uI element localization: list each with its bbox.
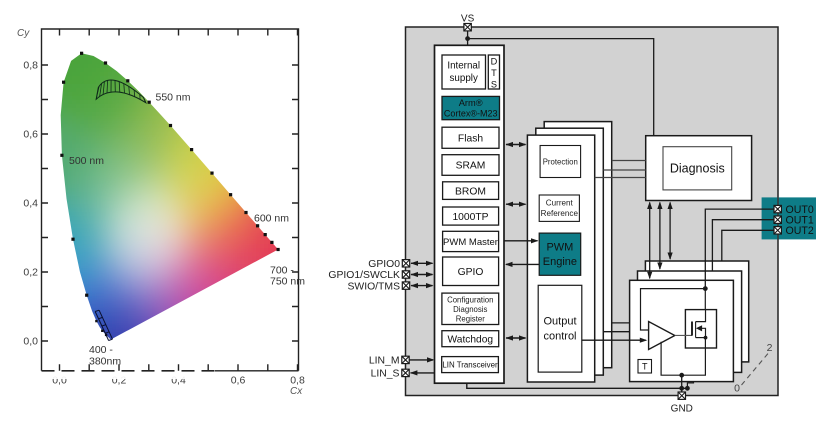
svg-text:Arm®: Arm® (459, 98, 483, 108)
svg-text:BROM: BROM (455, 186, 486, 197)
svg-text:control: control (543, 331, 576, 343)
svg-text:Engine: Engine (543, 256, 577, 268)
svg-text:PWM Master: PWM Master (443, 237, 498, 248)
svg-text:Watchdog: Watchdog (448, 334, 494, 345)
svg-text:Register: Register (456, 315, 485, 324)
svg-text:Flash: Flash (458, 134, 483, 145)
svg-text:GPIO: GPIO (458, 267, 484, 278)
svg-text:Current: Current (546, 199, 574, 208)
svg-text:D: D (491, 57, 498, 67)
svg-text:Diagnosis: Diagnosis (670, 162, 725, 176)
svg-text:GND: GND (671, 404, 693, 415)
svg-text:LIN_S: LIN_S (371, 369, 400, 380)
svg-text:Reference: Reference (541, 209, 579, 218)
svg-text:VS: VS (461, 14, 475, 25)
svg-text:PWM: PWM (546, 242, 573, 254)
svg-text:1000TP: 1000TP (452, 212, 488, 223)
svg-text:0: 0 (734, 383, 740, 395)
svg-text:Cortex®-M23: Cortex®-M23 (444, 109, 498, 119)
svg-text:supply: supply (450, 73, 478, 84)
svg-text:SWIO/TMS: SWIO/TMS (347, 281, 400, 292)
svg-text:T: T (491, 68, 497, 78)
svg-text:Output: Output (543, 316, 576, 328)
svg-text:Protection: Protection (543, 158, 578, 167)
svg-text:LIN_M: LIN_M (369, 356, 400, 367)
svg-text:T: T (642, 362, 648, 372)
svg-text:Configuration: Configuration (447, 296, 493, 305)
svg-text:OUT2: OUT2 (786, 225, 814, 237)
svg-text:GPIO0: GPIO0 (368, 259, 400, 270)
svg-text:Internal: Internal (447, 61, 480, 72)
svg-text:LIN Transceiver: LIN Transceiver (442, 361, 498, 370)
svg-text:Diagnosis: Diagnosis (453, 305, 487, 314)
svg-text:SRAM: SRAM (456, 161, 486, 172)
svg-text:S: S (491, 80, 497, 90)
svg-text:2: 2 (767, 342, 773, 354)
svg-text:GPIO1/SWCLK: GPIO1/SWCLK (328, 270, 400, 281)
